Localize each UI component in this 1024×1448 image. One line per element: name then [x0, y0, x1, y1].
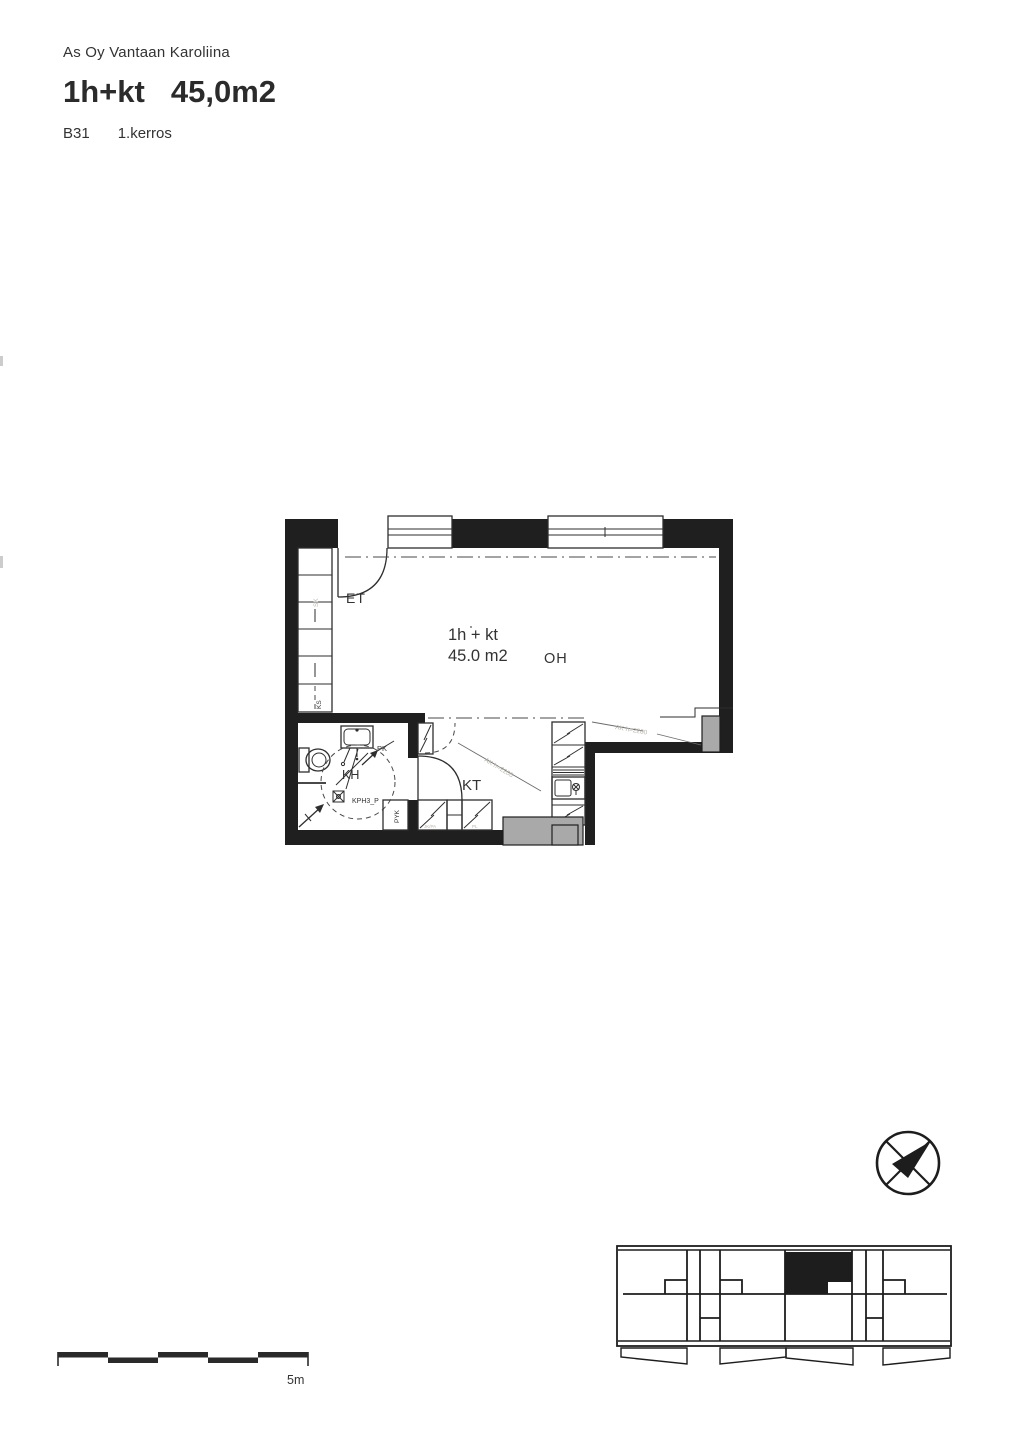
window — [388, 516, 452, 548]
bathroom-code: KPH3_P — [352, 798, 379, 805]
kitchen-label: KT — [462, 777, 481, 794]
floor-plan: SK KS PK — [285, 516, 733, 845]
sink-unit — [552, 777, 585, 799]
linen-cabinet: PYK — [383, 800, 408, 830]
bathroom-door — [418, 756, 462, 800]
appliance-cabinet — [418, 723, 433, 754]
living-label: OH — [544, 651, 568, 667]
bathroom: PK KH KPH3_P — [298, 726, 408, 830]
wardrobe-label-top: SK — [313, 598, 320, 607]
highlighted-unit — [785, 1252, 852, 1294]
key-plan-balconies — [621, 1348, 950, 1365]
shower-symbol: KH — [336, 749, 368, 789]
toilet — [299, 748, 330, 772]
key-plan — [617, 1246, 951, 1365]
window — [548, 516, 663, 548]
kitchen-base-cabinets: JK/PA PL — [418, 800, 492, 830]
stove-unit — [552, 767, 585, 777]
type-label: 1h + kt — [448, 626, 498, 644]
floor-plan-page: As Oy Vantaan Karoliina 1h+kt45,0m2 B311… — [0, 0, 1024, 1448]
appliance-label-a: JK/PA — [424, 824, 436, 829]
scale-bar: 5m — [58, 1352, 308, 1387]
scan-artifact — [0, 356, 3, 568]
pillar — [702, 716, 720, 752]
ceiling-note-text: AK h=2200 — [483, 757, 515, 780]
bathroom-label: KH — [342, 768, 359, 782]
wardrobe-column: SK KS — [298, 548, 332, 712]
linen-cabinet-label: PYK — [394, 809, 401, 823]
scale-label: 5m — [287, 1373, 304, 1387]
ceiling-height-note: AK h=2200 — [592, 722, 701, 745]
compass — [877, 1132, 939, 1194]
drawing-canvas: SK KS PK — [0, 0, 1024, 1448]
kitchen-appliance-column — [552, 722, 585, 825]
apartment-walls — [285, 519, 733, 845]
wardrobe-label-bottom: KS — [316, 700, 323, 709]
entry-label: ET — [346, 590, 366, 606]
area-label: 45.0 m2 — [448, 647, 508, 665]
slope-arrow — [299, 804, 324, 827]
ceiling-note-text: AK h=2200 — [615, 724, 648, 737]
floor-drain — [333, 791, 344, 802]
plan-dot — [470, 626, 472, 628]
appliance-label-b: PL — [472, 824, 478, 829]
exterior-pad — [503, 817, 583, 845]
turning-circle — [321, 745, 395, 819]
ceiling-line — [345, 557, 716, 718]
